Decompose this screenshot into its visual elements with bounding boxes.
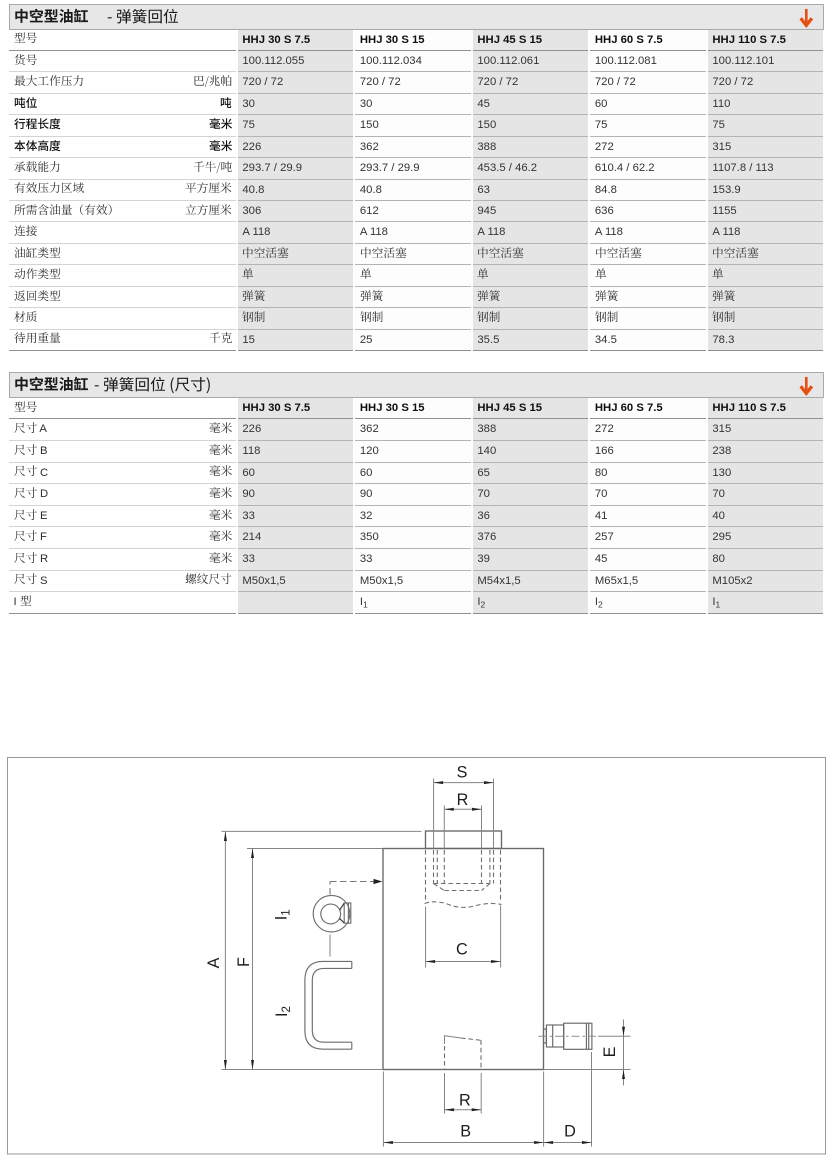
svg-text:R: R (459, 1091, 471, 1109)
svg-text:I2: I2 (273, 1006, 293, 1017)
svg-text:B: B (460, 1123, 471, 1141)
svg-text:S: S (457, 764, 468, 782)
svg-text:D: D (564, 1123, 576, 1141)
svg-text:A: A (205, 957, 223, 968)
svg-text:E: E (601, 1046, 619, 1057)
svg-text:F: F (235, 957, 253, 967)
svg-text:C: C (456, 941, 468, 959)
svg-text:I1: I1 (272, 909, 292, 920)
svg-text:R: R (457, 791, 469, 809)
